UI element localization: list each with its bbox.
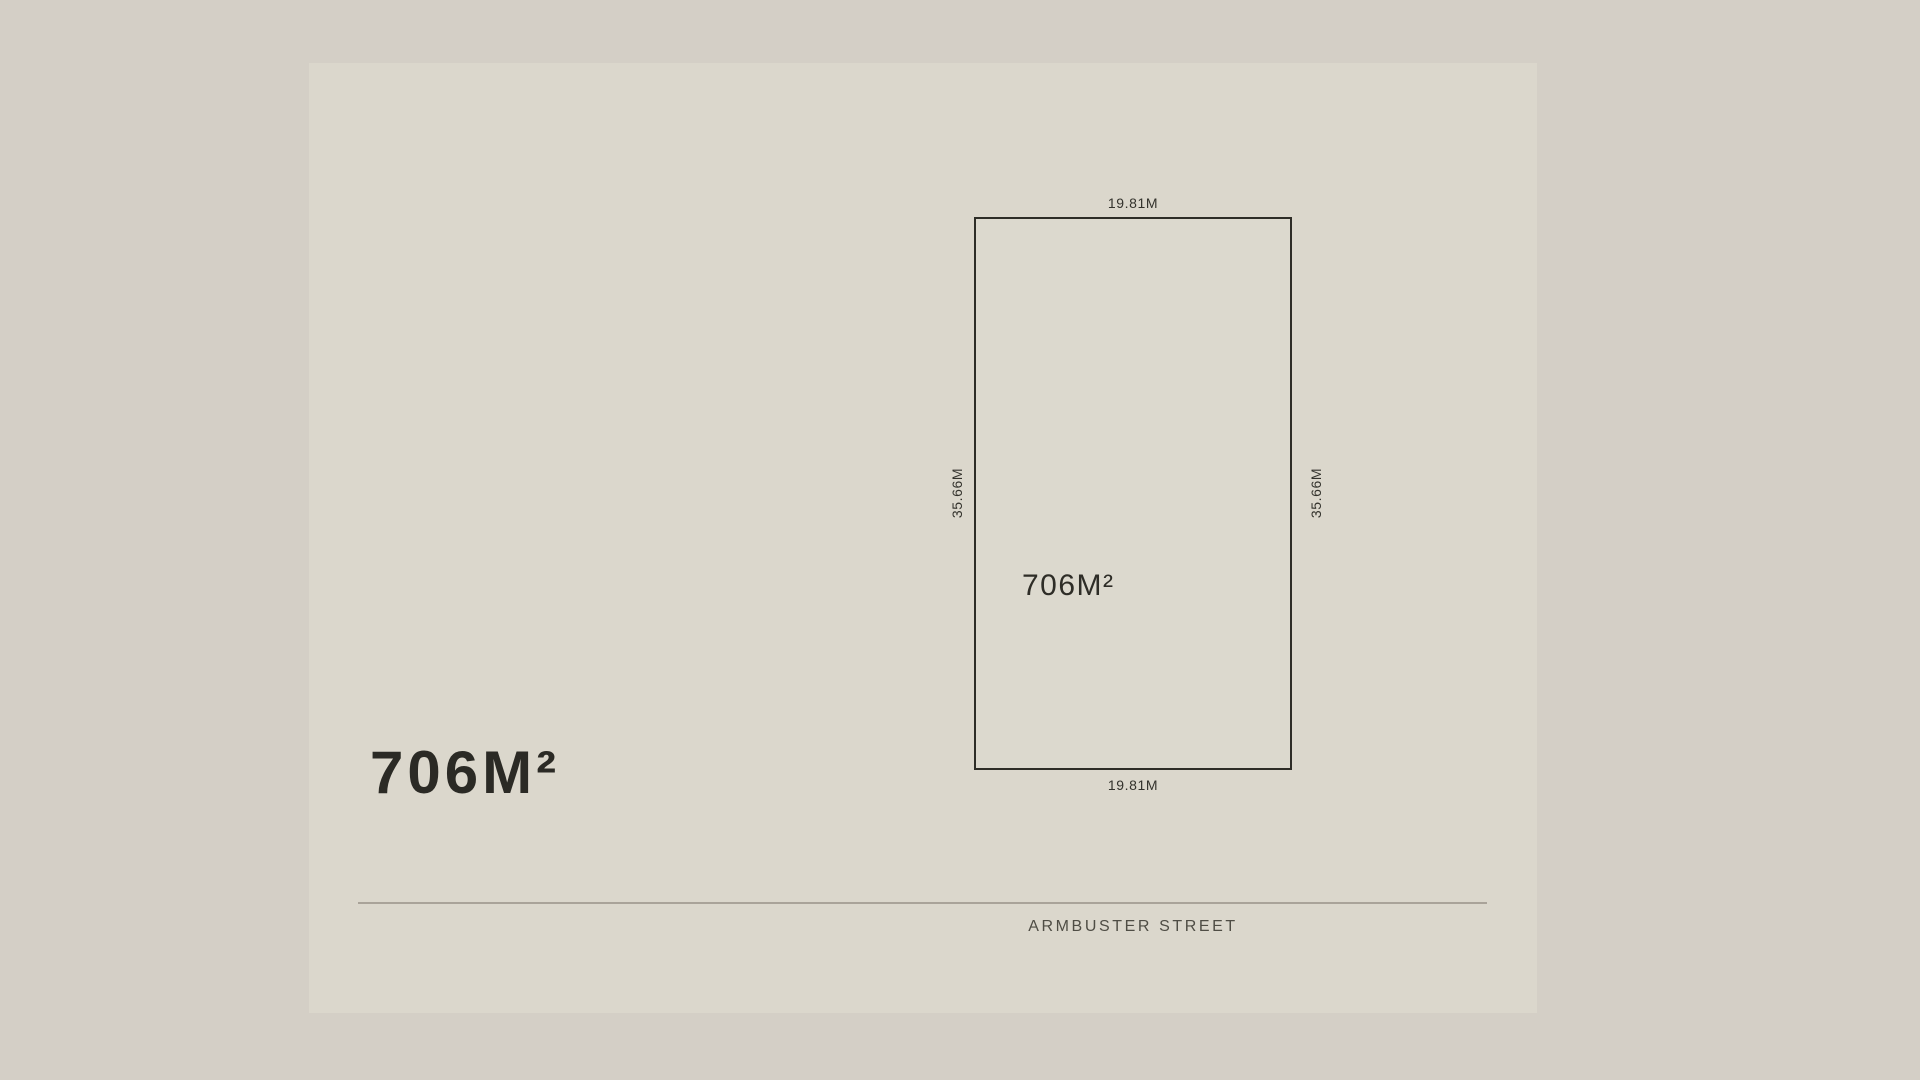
plan-panel: 706M² 19.81M 19.81M 35.66M 35.66M 706M² … xyxy=(309,63,1537,1013)
left-dimension-label: 35.66M xyxy=(950,468,964,518)
lot-boundary xyxy=(974,217,1292,770)
street-divider-line xyxy=(358,902,1487,904)
bottom-dimension-label: 19.81M xyxy=(1108,778,1158,792)
right-dimension-label: 35.66M xyxy=(1309,468,1323,518)
headline-area-label: 706M² xyxy=(370,743,560,803)
street-name-label: ARMBUSTER STREET xyxy=(1028,919,1238,935)
top-dimension-label: 19.81M xyxy=(1108,196,1158,210)
lot-area-label: 706M² xyxy=(1022,571,1115,601)
lot-plan-canvas: 706M² 19.81M 19.81M 35.66M 35.66M 706M² … xyxy=(0,0,1920,1080)
